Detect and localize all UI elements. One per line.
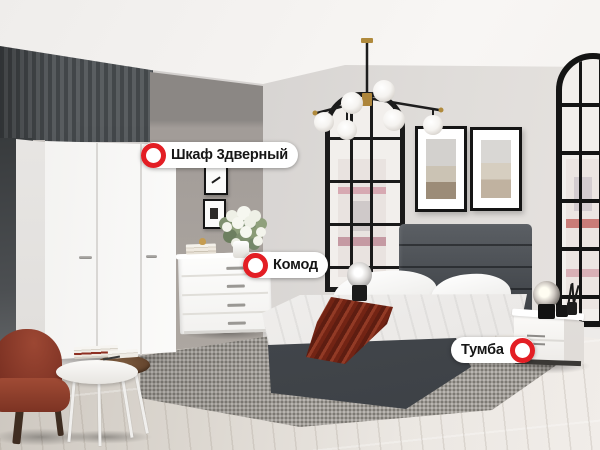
table-shadow bbox=[58, 430, 154, 444]
hotspot-marker-icon[interactable] bbox=[141, 143, 166, 168]
hotspot-dresser[interactable]: Комод bbox=[243, 252, 328, 278]
lamp-base bbox=[538, 304, 555, 319]
drawer-handle bbox=[227, 303, 245, 306]
drawer-handle bbox=[527, 335, 545, 338]
small-frame-top bbox=[204, 166, 228, 195]
chandelier-globe bbox=[314, 112, 334, 132]
chandelier-globe bbox=[383, 109, 405, 131]
drawer-handle bbox=[228, 321, 246, 324]
decor-books bbox=[186, 243, 216, 254]
arm-tip bbox=[313, 111, 318, 116]
beach-photo bbox=[481, 140, 511, 198]
gold-figurine bbox=[199, 238, 206, 245]
wardrobe-handle bbox=[79, 256, 92, 259]
chandelier-canopy bbox=[361, 38, 373, 43]
wardrobe-handle bbox=[146, 255, 157, 258]
drawer-gap bbox=[182, 292, 268, 296]
chandelier-globe bbox=[373, 80, 395, 102]
arm-tip bbox=[439, 108, 444, 113]
hotspot-nightstand[interactable]: Тумба bbox=[451, 337, 535, 363]
white-coffee-table bbox=[56, 360, 138, 384]
chandelier-hub bbox=[362, 93, 372, 106]
hotspot-label: Шкаф 3дверный bbox=[171, 147, 288, 163]
drawer-handle bbox=[227, 284, 245, 287]
chandelier-globe bbox=[341, 92, 363, 114]
lamp-base bbox=[352, 285, 367, 301]
hotspot-label: Тумба bbox=[461, 342, 504, 358]
bedroom-scene: Шкаф 3дверный Комод Тумба bbox=[0, 0, 600, 450]
drawer-handle bbox=[226, 266, 244, 269]
wall-art-right bbox=[470, 127, 522, 211]
chandelier bbox=[293, 36, 463, 140]
armchair-seat bbox=[0, 378, 70, 412]
wardrobe-door-seam bbox=[140, 144, 142, 355]
hotspot-label: Комод bbox=[273, 257, 318, 273]
hotspot-marker-icon[interactable] bbox=[510, 338, 535, 363]
arrow-art-icon bbox=[211, 176, 220, 183]
chandelier-globe bbox=[423, 115, 443, 135]
wardrobe-door-seam bbox=[96, 143, 98, 357]
chandelier-globe bbox=[337, 120, 357, 140]
window-mullions bbox=[562, 59, 600, 321]
hotspot-wardrobe[interactable]: Шкаф 3дверный bbox=[141, 142, 298, 168]
beach-photo bbox=[426, 139, 456, 199]
drawer-gap bbox=[183, 311, 269, 315]
reed-diffuser bbox=[567, 302, 577, 315]
hotspot-marker-icon[interactable] bbox=[243, 253, 268, 278]
